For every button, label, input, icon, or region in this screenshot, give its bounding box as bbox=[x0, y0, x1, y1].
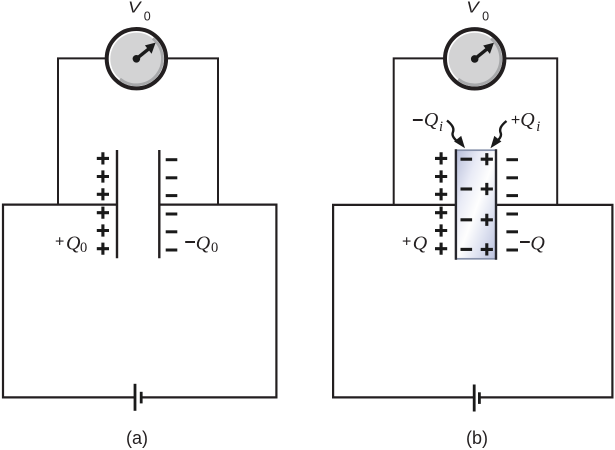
svg-text:+: + bbox=[511, 112, 520, 129]
svg-text:Q: Q bbox=[413, 233, 428, 255]
svg-text:Q: Q bbox=[66, 233, 81, 255]
svg-text:Q: Q bbox=[424, 109, 439, 131]
svg-text:+: + bbox=[402, 234, 411, 251]
svg-text:Q: Q bbox=[530, 233, 545, 255]
svg-text:0: 0 bbox=[482, 10, 489, 24]
svg-text:V: V bbox=[128, 0, 143, 17]
svg-text:0: 0 bbox=[144, 10, 151, 24]
svg-text:+: + bbox=[55, 234, 64, 251]
svg-text:0: 0 bbox=[211, 240, 218, 256]
svg-text:i: i bbox=[439, 119, 443, 135]
svg-text:(a): (a) bbox=[126, 428, 148, 448]
svg-text:Q: Q bbox=[520, 109, 535, 131]
svg-text:i: i bbox=[536, 119, 540, 135]
svg-text:Q: Q bbox=[196, 233, 211, 255]
svg-text:0: 0 bbox=[80, 240, 87, 256]
svg-text:V: V bbox=[466, 0, 481, 17]
svg-text:(b): (b) bbox=[466, 428, 488, 448]
